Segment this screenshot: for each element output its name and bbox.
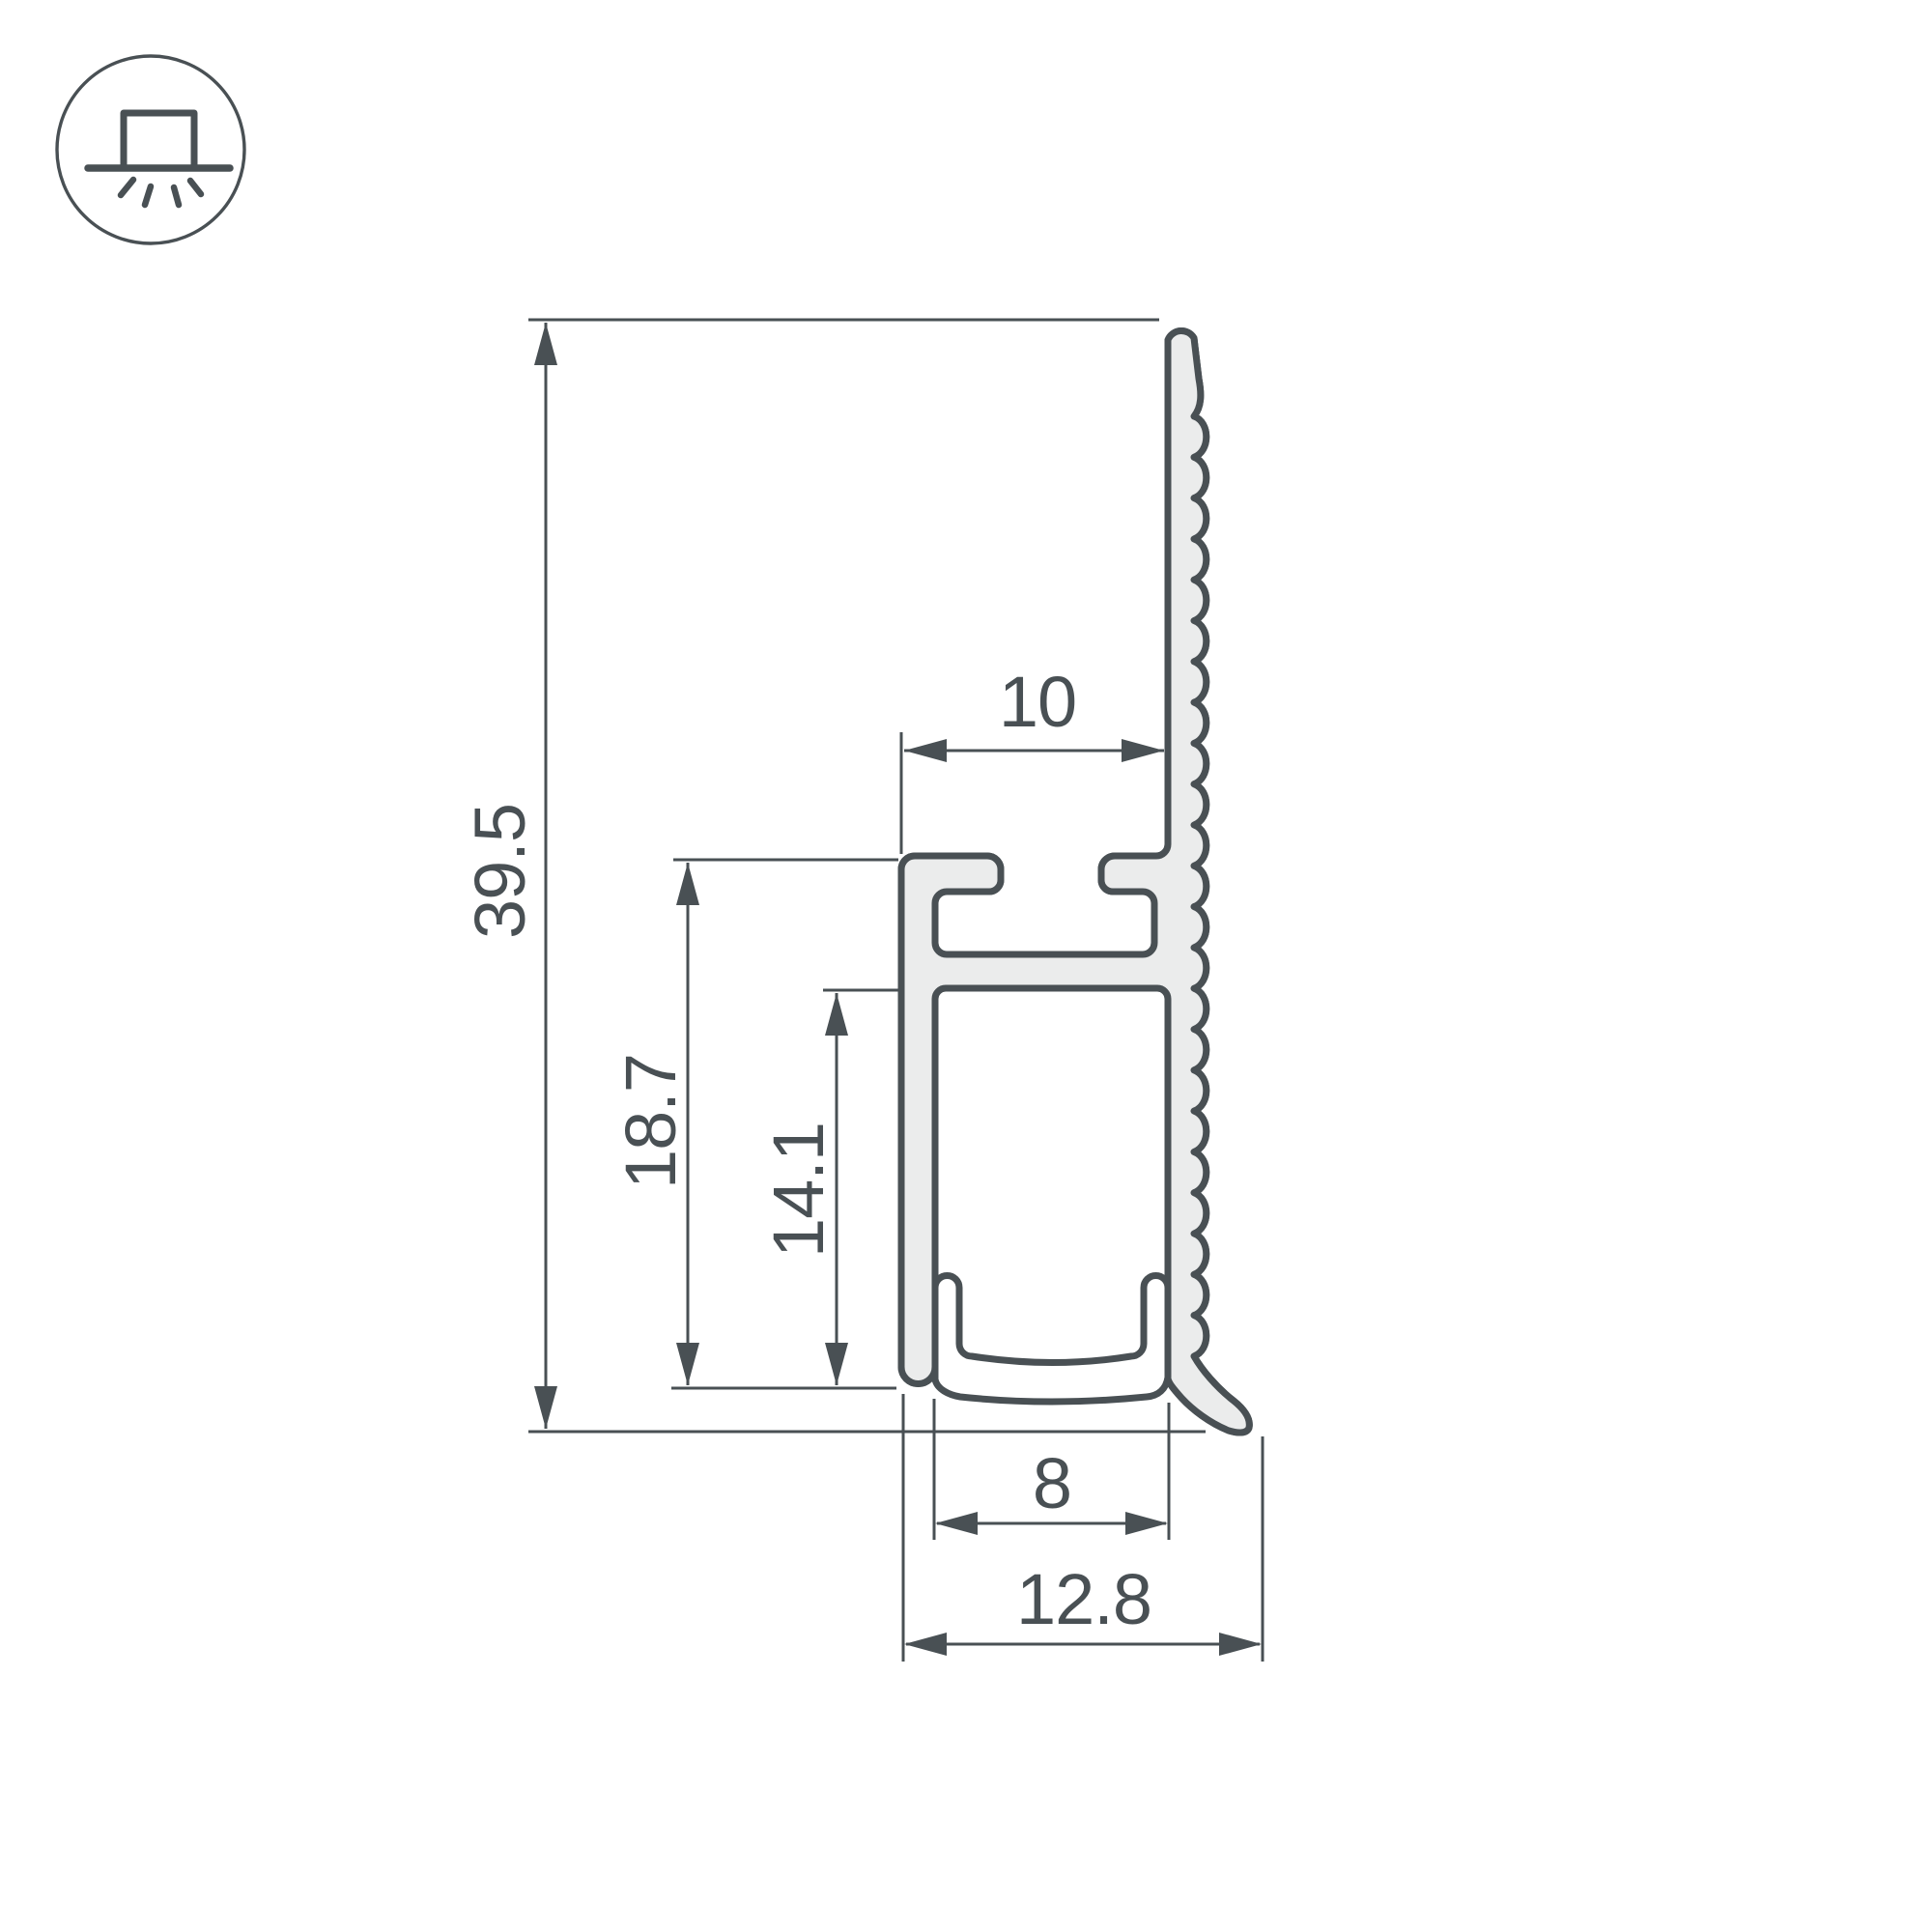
arrowhead-right — [1125, 1512, 1168, 1535]
profile-technical-drawing: 39.5 18.7 14.1 10 8 — [0, 0, 1932, 1932]
dimension-top-slot-depth: 10 — [901, 662, 1164, 854]
arrowhead-up — [825, 993, 848, 1036]
arrowhead-down — [676, 1343, 699, 1385]
dim-label-overall-depth: 12.8 — [1016, 1559, 1151, 1639]
arrowhead-left — [935, 1512, 978, 1535]
arrowhead-left — [904, 1633, 947, 1656]
arrowhead-down — [534, 1386, 557, 1429]
icon-circle — [57, 56, 244, 243]
dimension-body-height: 18.7 — [611, 860, 898, 1388]
dimension-total-height: 39.5 — [460, 320, 1206, 1432]
arrowhead-up — [534, 323, 557, 365]
dimension-channel-inner-height: 14.1 — [758, 990, 901, 1385]
profile-body — [901, 330, 1249, 1433]
arrowhead-right — [1122, 739, 1164, 762]
surface-mount-light-icon — [57, 56, 244, 243]
dim-label-top-slot-depth: 10 — [999, 662, 1076, 742]
dim-label-channel-inner-width: 8 — [1033, 1443, 1071, 1523]
dim-label-body-height: 18.7 — [611, 1054, 691, 1189]
aluminium-hatching — [901, 330, 1249, 1433]
arrowhead-left — [904, 739, 947, 762]
icon-light-rays — [121, 180, 201, 205]
drawing-canvas: 39.5 18.7 14.1 10 8 — [0, 0, 1932, 1932]
dimension-channel-inner-width: 8 — [934, 1399, 1169, 1540]
dim-label-total-height: 39.5 — [460, 804, 540, 939]
icon-fixture-box — [124, 113, 194, 168]
arrowhead-up — [676, 863, 699, 905]
arrowhead-down — [825, 1343, 848, 1385]
dim-label-channel-inner-height: 14.1 — [758, 1122, 838, 1258]
arrowhead-right — [1219, 1633, 1262, 1656]
diffuser-section — [935, 1276, 1168, 1403]
